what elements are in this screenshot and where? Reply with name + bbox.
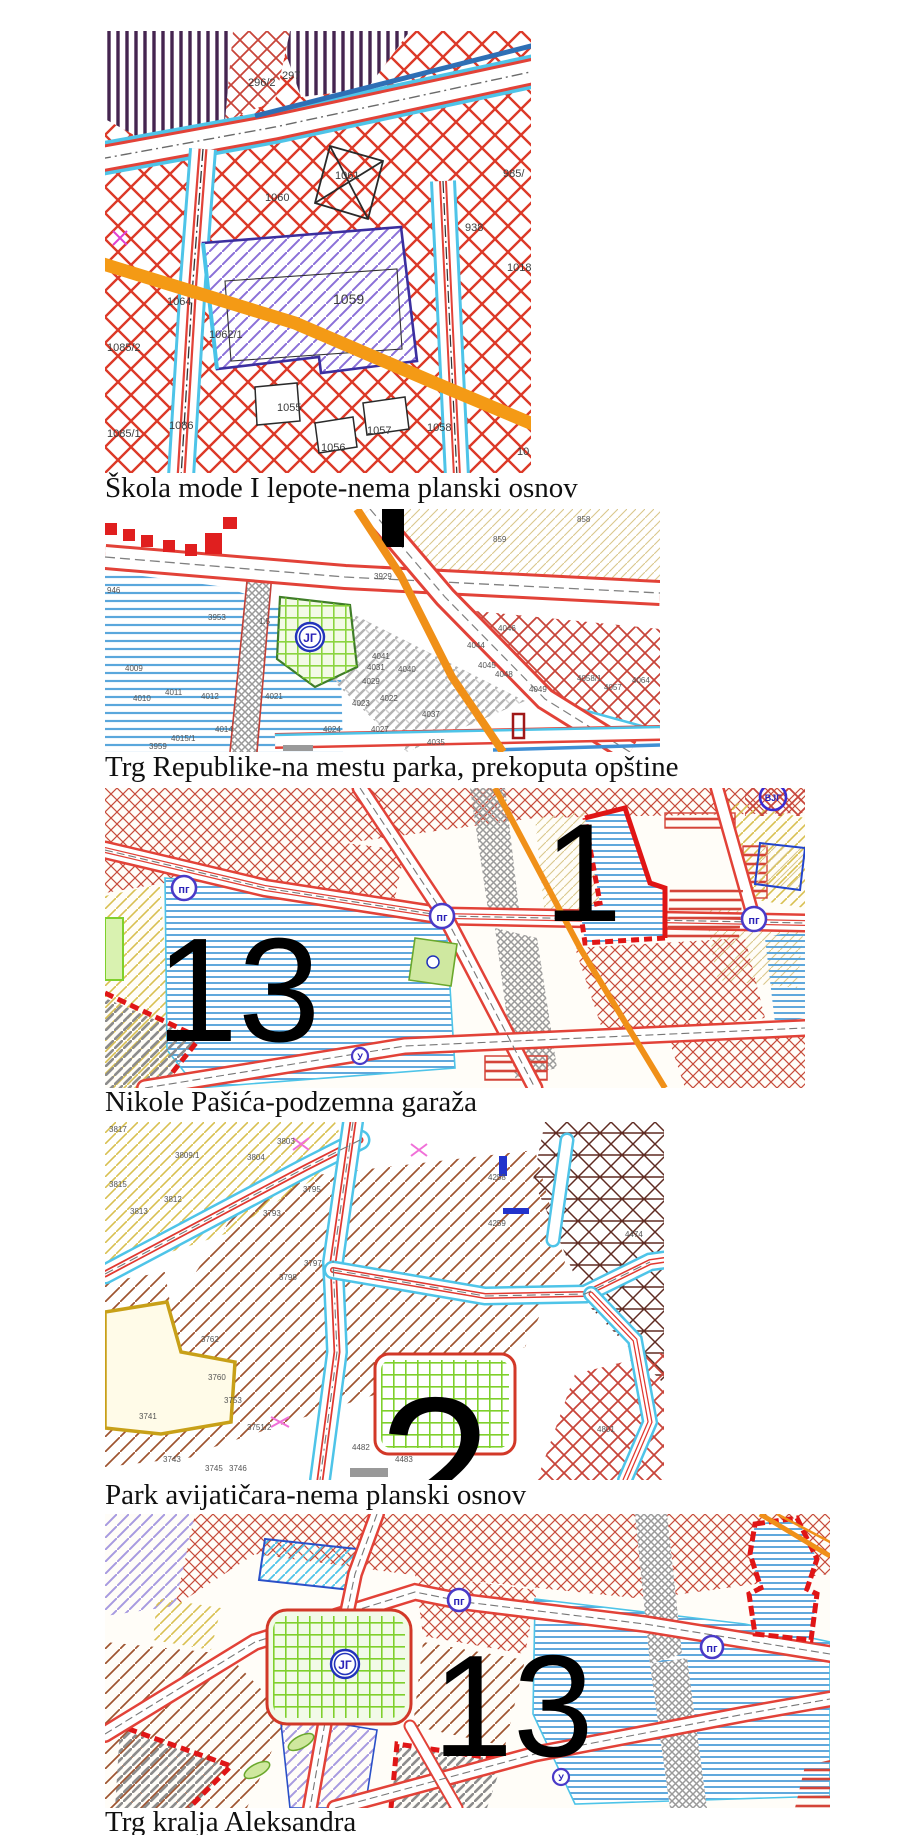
- svg-text:пг: пг: [453, 1596, 465, 1608]
- pg-marker-icon: пг: [448, 1589, 470, 1611]
- parcel-label: 4045: [478, 661, 496, 670]
- zone-number-13: 13: [156, 908, 321, 1073]
- parcel-label: 4010: [133, 694, 151, 703]
- parcel-label: 3804: [247, 1153, 265, 1162]
- parcel-label: 3959: [149, 742, 167, 751]
- parcel-label: 4064: [632, 676, 650, 685]
- parcel-label: 4027: [371, 725, 389, 734]
- map-trg-republike: ЈГ 946 3953 4009 4010 4011 4012 4014 401…: [105, 509, 660, 752]
- map3-park: [409, 938, 457, 986]
- parcel-label: 4023: [352, 699, 370, 708]
- parcel-label: 4022: [380, 694, 398, 703]
- parcel-label: 1059: [333, 291, 364, 307]
- parcel-label: 4041: [372, 652, 390, 661]
- parcel-label: 4021: [265, 692, 283, 701]
- parcel-label: 296/2: [248, 77, 276, 89]
- parcel-label: 3751/2: [247, 1423, 272, 1432]
- parcel-label: 946: [107, 586, 121, 595]
- caption-trg-republike: Trg Republike-na mestu parka, prekoputa …: [105, 751, 678, 783]
- svg-text:пг: пг: [748, 915, 760, 927]
- jg-marker-label: ЈГ: [338, 1658, 352, 1672]
- pg-marker-icon: пг: [172, 876, 196, 900]
- parcel-label: 859: [493, 535, 507, 544]
- parcel-label: 1055: [277, 402, 301, 414]
- parcel-label: 3745: [205, 1464, 223, 1473]
- parcel-label: 10: [517, 446, 529, 458]
- map-trg-kralja-aleksandra: ЈГ пг пг У 13: [105, 1514, 830, 1808]
- parcel-label: 3813: [130, 1207, 148, 1216]
- caption-text: Trg kralja Aleksandra: [105, 1806, 356, 1835]
- parcel-label: 4014: [215, 725, 233, 734]
- parcel-label: 4801: [597, 1425, 615, 1434]
- parcel-label: 858: [577, 515, 591, 524]
- document-page: 296/2 297 1061 1060 985/ 938 1018 1064 1…: [0, 0, 912, 1835]
- map-skola-mode-image: 296/2 297 1061 1060 985/ 938 1018 1064 1…: [105, 31, 531, 473]
- pg-marker-icon: пг: [701, 1636, 723, 1658]
- parcel-label: 1086: [169, 420, 193, 432]
- parcel-label: 4012: [201, 692, 219, 701]
- parcel-label: 3929: [374, 572, 392, 581]
- parcel-label: 1056: [321, 442, 345, 454]
- parcel-label: 4048: [495, 670, 513, 679]
- pg-marker-icon: пг: [430, 904, 454, 928]
- parcel-label: 1060: [265, 192, 289, 204]
- parcel-label: 4258: [488, 1173, 506, 1182]
- parcel-label: 3812: [164, 1195, 182, 1204]
- caption-skola-mode: Škola mode I lepote-nema planski osnov: [105, 472, 578, 504]
- zone-number-1: 1: [544, 794, 622, 951]
- u-marker-icon: У: [352, 1048, 368, 1064]
- parcel-label: 1085/1: [107, 428, 141, 440]
- map-skola-mode: 296/2 297 1061 1060 985/ 938 1018 1064 1…: [105, 31, 531, 473]
- parcel-label: 1.5: [259, 617, 271, 626]
- parcel-label: 3741: [139, 1412, 157, 1421]
- parcel-label: 3762: [201, 1335, 219, 1344]
- parcel-label: 1057: [367, 425, 391, 437]
- parcel-label: 3743: [163, 1455, 181, 1464]
- parcel-label: 4474: [625, 1230, 643, 1239]
- caption-trg-kralja-aleksandra: Trg kralja Aleksandra: [105, 1806, 588, 1835]
- map-nikole-pasica: пг пг пг ВЈГ У 13 1: [105, 788, 805, 1088]
- parcel-label: 3797: [304, 1259, 322, 1268]
- parcel-label: 3760: [208, 1373, 226, 1382]
- pg-marker-icon: пг: [742, 907, 766, 931]
- map-trg-republike-image: ЈГ 946 3953 4009 4010 4011 4012 4014 401…: [105, 509, 660, 752]
- parcel-label: 297: [282, 70, 300, 82]
- parcel-label: 3798: [279, 1273, 297, 1282]
- parcel-label: 938: [465, 222, 483, 234]
- parcel-label: 4011: [165, 688, 183, 697]
- parcel-label: 3746: [229, 1464, 247, 1473]
- parcel-label: 4035: [427, 738, 445, 747]
- zone-number-2: 2: [378, 1355, 492, 1480]
- svg-text:ВЈГ: ВЈГ: [765, 793, 782, 803]
- svg-text:пг: пг: [706, 1643, 718, 1655]
- parcel-label: 4040: [398, 665, 416, 674]
- parcel-label: 4009: [125, 664, 143, 673]
- parcel-label: 4046: [498, 624, 516, 633]
- caption-park-avijaticara: Park avijatičara-nema planski osnov: [105, 1479, 526, 1511]
- svg-text:пг: пг: [178, 884, 190, 896]
- parcel-label: 3809/1: [175, 1151, 200, 1160]
- parcel-label: 3953: [208, 613, 226, 622]
- parcel-label: 1062/1: [209, 329, 243, 341]
- map-trg-kralja-aleksandra-image: ЈГ пг пг У 13: [105, 1514, 830, 1808]
- svg-text:пг: пг: [436, 912, 448, 924]
- parcel-label: 4259: [488, 1219, 506, 1228]
- parcel-label: 3793: [263, 1209, 281, 1218]
- map2-black-marker: [382, 509, 404, 547]
- parcel-label: 4024: [323, 725, 341, 734]
- parcel-label: 4044: [467, 641, 485, 650]
- parcel-label: 4015/1: [171, 734, 196, 743]
- parcel-label: 4057: [604, 683, 622, 692]
- parcel-label: 4058/1: [577, 674, 602, 683]
- map5-garage-polygon: [749, 1518, 817, 1640]
- parcel-label: 3817: [109, 1125, 127, 1134]
- zone-number-13: 13: [432, 1625, 593, 1787]
- parcel-label: 3795: [303, 1185, 321, 1194]
- parcel-label: 3753: [224, 1396, 242, 1405]
- parcel-label: 985/: [503, 168, 525, 180]
- parcel-label: 1058: [427, 422, 451, 434]
- jg-marker-label: ЈГ: [303, 631, 317, 645]
- map-park-avijaticara-image: 3817 3803 3809/1 3804 3815 3812 3813 379…: [105, 1122, 664, 1480]
- parcel-label: 4049: [529, 685, 547, 694]
- parcel-label: 4031: [367, 663, 385, 672]
- parcel-label: 1085/2: [107, 342, 141, 354]
- parcel-label: 1061: [335, 170, 359, 182]
- parcel-label: 3815: [109, 1180, 127, 1189]
- map-nikole-pasica-image: пг пг пг ВЈГ У 13 1: [105, 788, 805, 1088]
- parcel-label: 4037: [422, 710, 440, 719]
- parcel-label: 1064: [167, 296, 191, 308]
- parcel-label: 3803: [277, 1137, 295, 1146]
- parcel-label: 1018: [507, 262, 531, 274]
- svg-text:У: У: [357, 1052, 363, 1062]
- parcel-label: 4482: [352, 1443, 370, 1452]
- parcel-label: 4029: [362, 677, 380, 686]
- caption-nikole-pasica: Nikole Pašića-podzemna garaža: [105, 1086, 477, 1118]
- map-park-avijaticara: 3817 3803 3809/1 3804 3815 3812 3813 379…: [105, 1122, 664, 1480]
- map5-park: ЈГ: [267, 1610, 411, 1724]
